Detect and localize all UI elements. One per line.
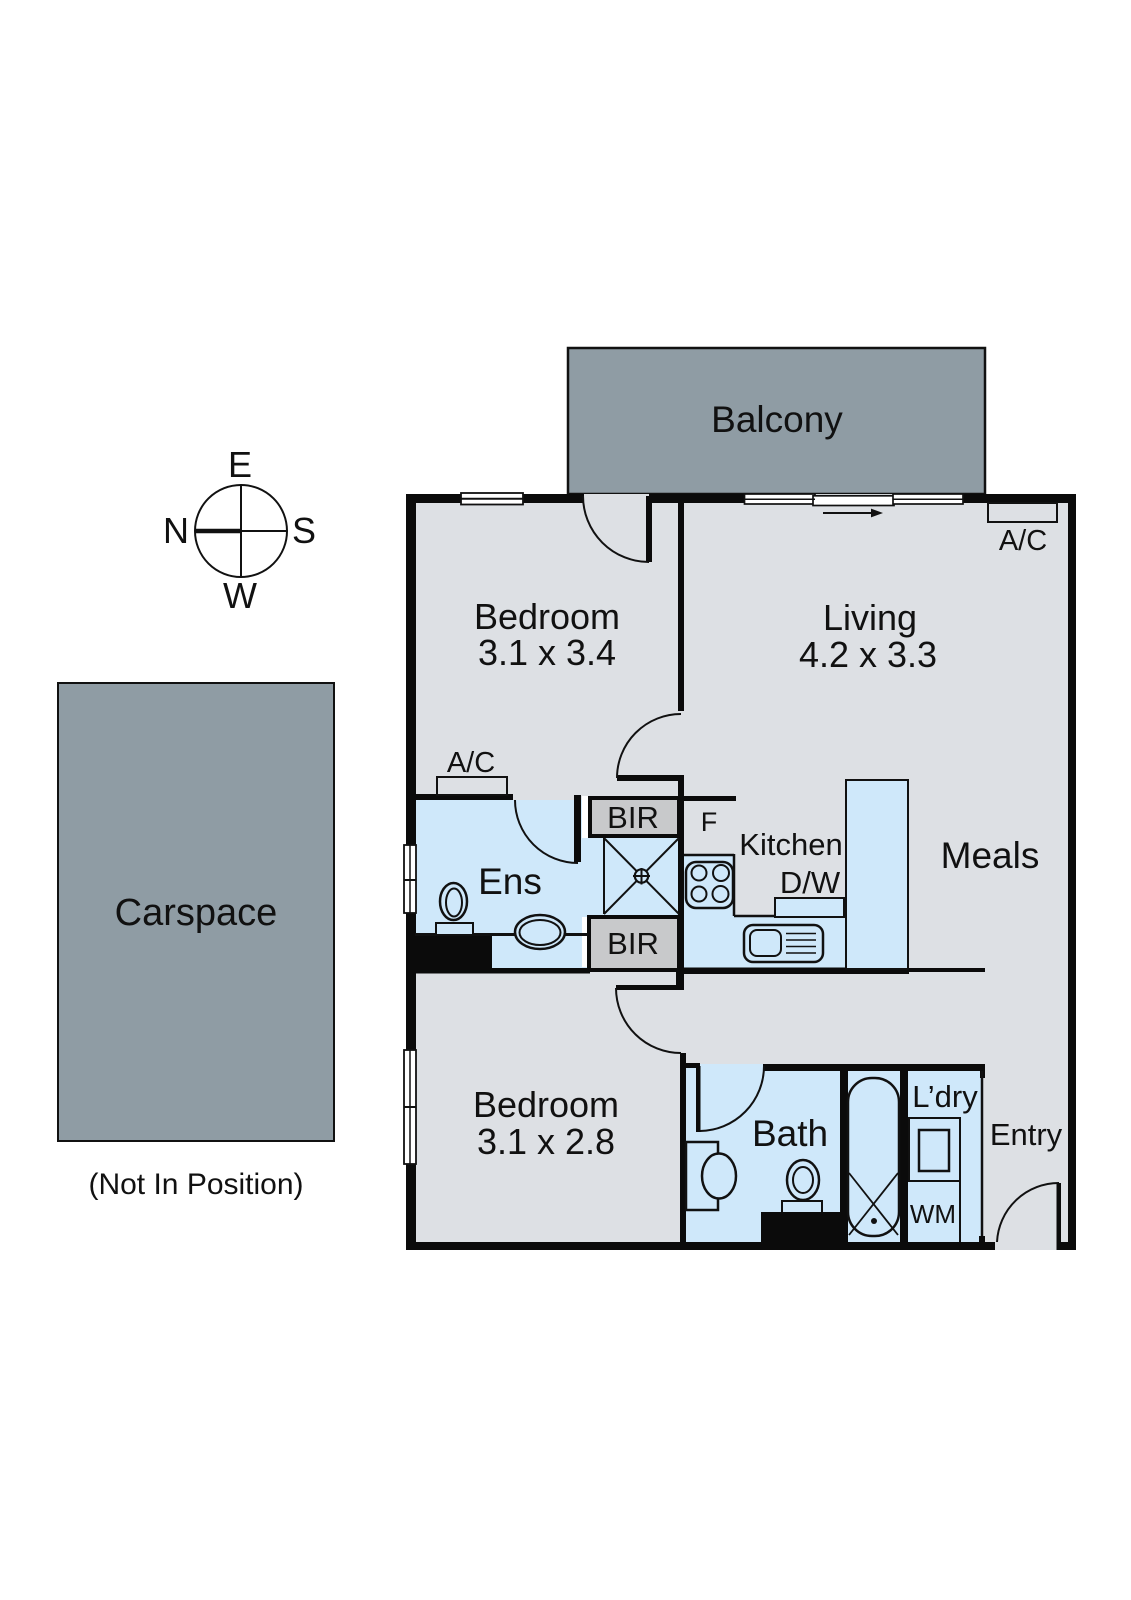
svg-text:(Not In Position): (Not In Position) [88, 1168, 303, 1201]
svg-text:Kitchen: Kitchen [739, 827, 842, 862]
svg-text:Bath: Bath [752, 1113, 828, 1154]
svg-text:D/W: D/W [780, 865, 841, 900]
svg-text:E: E [228, 444, 252, 485]
svg-text:Meals: Meals [941, 835, 1040, 876]
svg-text:BIR: BIR [607, 926, 659, 961]
svg-text:Living: Living [823, 597, 917, 638]
svg-text:S: S [292, 510, 316, 551]
svg-text:A/C: A/C [447, 747, 495, 779]
svg-text:W: W [223, 575, 257, 616]
svg-text:Entry: Entry [990, 1117, 1063, 1152]
svg-text:F: F [701, 807, 718, 837]
svg-text:Carspace: Carspace [115, 892, 278, 934]
svg-text:WM: WM [910, 1199, 956, 1229]
svg-text:4.2 x 3.3: 4.2 x 3.3 [799, 634, 937, 675]
svg-text:3.1 x 3.4: 3.1 x 3.4 [478, 632, 616, 673]
svg-text:N: N [163, 510, 189, 551]
svg-text:L’dry: L’dry [912, 1079, 978, 1114]
svg-text:A/C: A/C [999, 525, 1047, 557]
svg-text:Bedroom: Bedroom [474, 596, 620, 637]
svg-text:Balcony: Balcony [711, 399, 843, 440]
svg-text:Bedroom: Bedroom [473, 1084, 619, 1125]
svg-text:Ens: Ens [478, 861, 542, 902]
svg-text:BIR: BIR [607, 800, 659, 835]
svg-text:3.1 x 2.8: 3.1 x 2.8 [477, 1121, 615, 1162]
